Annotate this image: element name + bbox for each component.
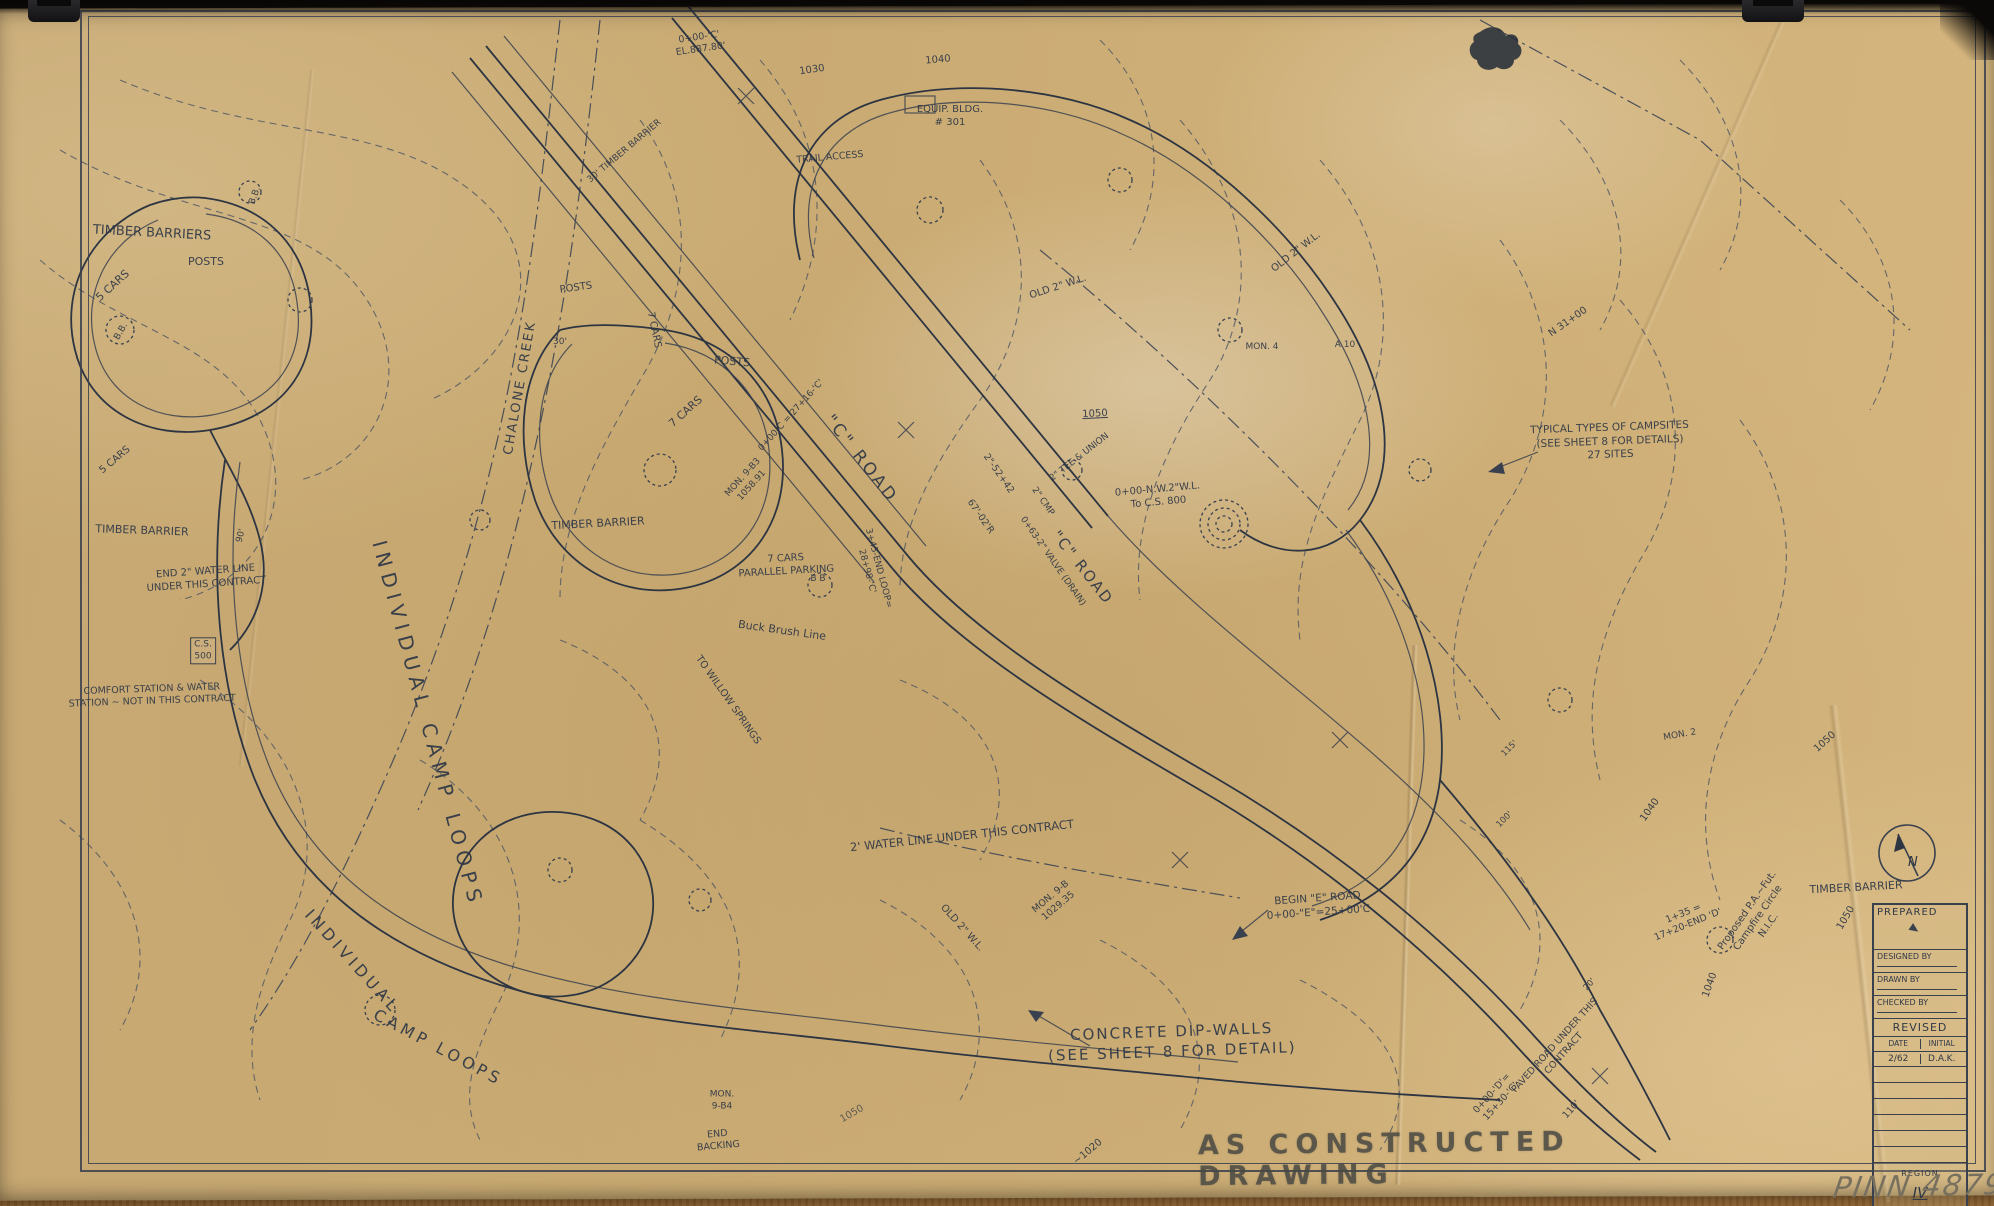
revision-initial: D.A.K. [1921,1054,1964,1064]
designed-by-label: DESIGNED BY [1877,952,1957,967]
initial-column-header: INITIAL [1921,1039,1964,1049]
binder-clip-right [1742,0,1804,22]
as-constructed-stamp: AS CONSTRUCTED DRAWING [1198,1126,1619,1192]
date-column-header: DATE [1877,1039,1921,1049]
revision-column-headers: DATE INITIAL [1874,1037,1966,1052]
photo-of-blueprint: TIMBER BARRIERSPOSTS5 CARSB.B.B.B.5 CARS… [0,0,1994,1206]
title-block: PREPARED DESIGNED BY DRAWN BY CHECKED BY… [1872,903,1968,1206]
revision-row-empty [1874,1099,1966,1115]
photo-top-shadow [0,0,1994,14]
revision-row-empty [1874,1067,1966,1083]
sheet-border-inner [88,16,1976,1164]
title-block-checked-by-row: CHECKED BY [1874,996,1966,1019]
north-arrow-compass: N [1872,818,1942,888]
drawn-by-label: DRAWN BY [1877,975,1957,990]
revision-row-empty [1874,1147,1966,1163]
prepared-arrow-icon [1909,923,1921,935]
handwritten-archive-number: PINN 4879 7of7 [1831,1165,1994,1204]
revision-date: 2/62 [1877,1054,1921,1064]
binder-clip-left [28,0,80,22]
revision-row-empty [1874,1115,1966,1131]
revision-row-empty [1874,1083,1966,1099]
revised-header: REVISED [1874,1019,1966,1037]
prepared-label: PREPARED [1877,907,1938,918]
revision-row: 2/62 D.A.K. [1874,1052,1966,1067]
revision-row-empty [1874,1131,1966,1147]
title-block-drawn-by-row: DRAWN BY [1874,973,1966,996]
photo-corner-shadow [1940,0,1994,60]
compass-north-label: N [1908,855,1918,870]
checked-by-label: CHECKED BY [1877,998,1957,1013]
title-block-designed-by-row: DESIGNED BY [1874,950,1966,973]
title-block-prepared-row: PREPARED [1874,905,1966,950]
